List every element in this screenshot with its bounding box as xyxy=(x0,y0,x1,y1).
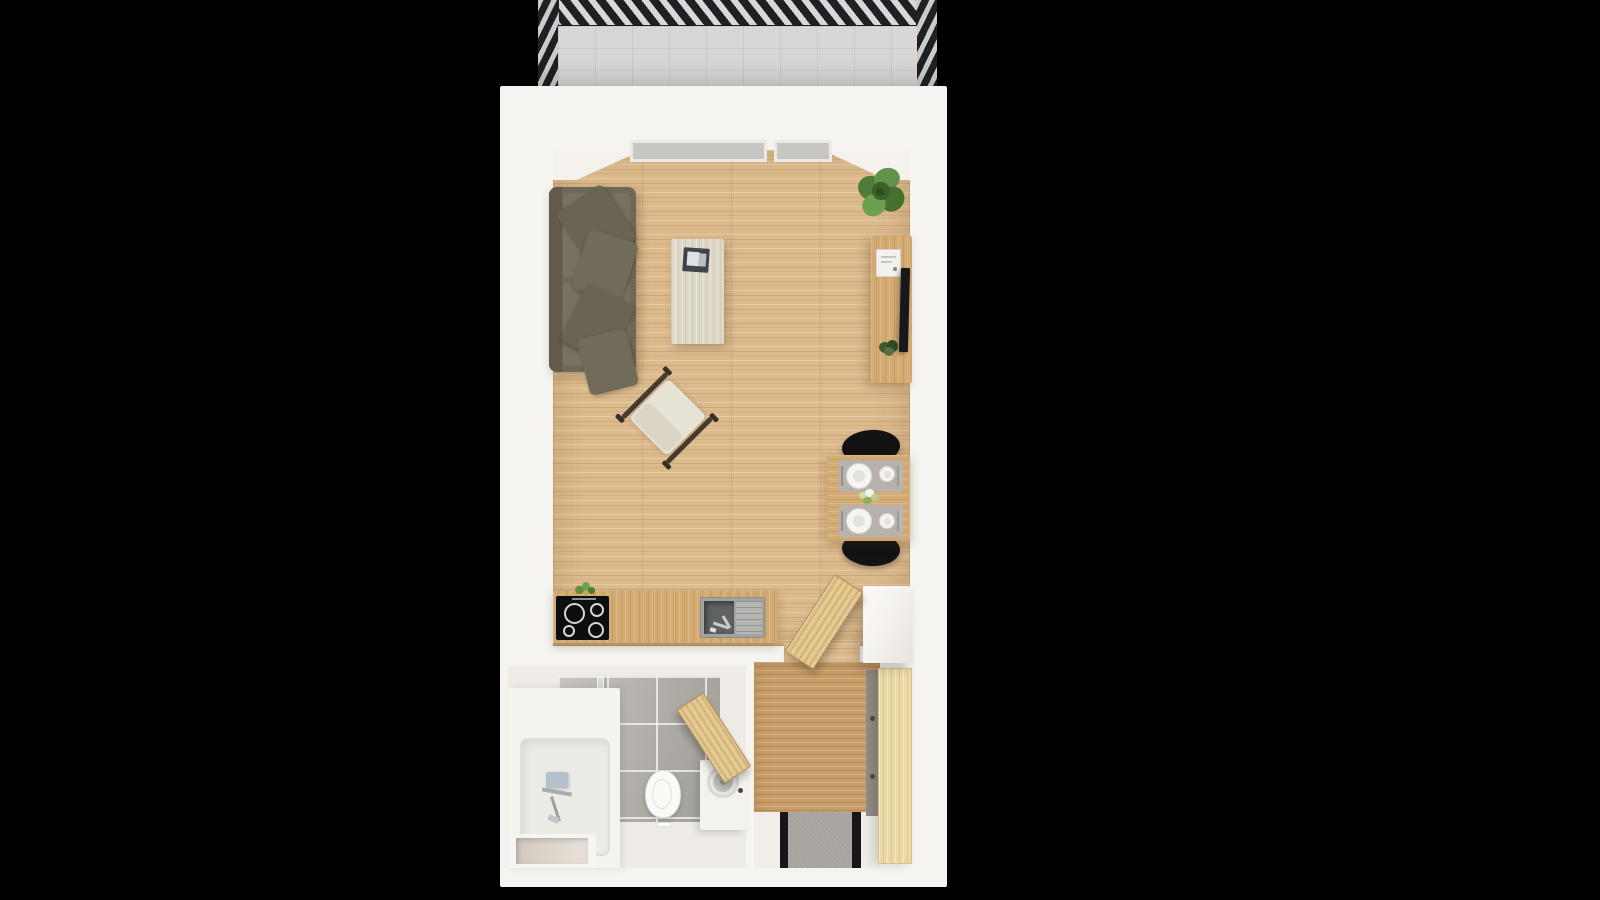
burner xyxy=(564,603,585,624)
hallway-floor xyxy=(754,662,880,812)
media-device-slot xyxy=(881,261,892,263)
burner xyxy=(588,622,604,638)
media-device-dot xyxy=(893,267,897,271)
side-plate xyxy=(879,513,895,529)
dinner-plate xyxy=(846,508,872,534)
bathroom-floor xyxy=(508,666,746,868)
dining-table xyxy=(827,455,910,541)
balcony-railing-left xyxy=(538,0,559,95)
plate-center xyxy=(884,471,891,478)
balcony-railing-top xyxy=(538,0,937,27)
console-plant xyxy=(879,338,899,356)
balcony xyxy=(538,0,937,95)
plant-leaf xyxy=(884,347,894,356)
apartment xyxy=(500,86,947,887)
door-mat-edge xyxy=(780,812,788,868)
toilet-seat-ring xyxy=(652,779,672,809)
cutlery-fork xyxy=(841,466,843,486)
placemat xyxy=(839,505,903,537)
niche-opening xyxy=(516,838,588,864)
magazine xyxy=(682,247,710,273)
kitchen-counter xyxy=(553,591,778,643)
herb-leaf xyxy=(588,587,595,594)
tv-panel xyxy=(899,268,910,352)
door-mat-edge xyxy=(852,812,861,868)
placemat xyxy=(839,460,903,492)
panel-handle xyxy=(870,774,875,779)
cooktop-controls xyxy=(572,598,596,600)
entrance-zone xyxy=(754,812,880,868)
floorplan-render: Photorealistic top-down 3D render of a s… xyxy=(0,0,1600,900)
magazine-page xyxy=(699,253,707,266)
flower xyxy=(863,497,872,504)
balcony-railing-right xyxy=(916,0,937,95)
balcony-floor xyxy=(558,26,917,95)
kitchen-sink xyxy=(700,597,765,638)
cooktop xyxy=(556,596,609,640)
plate-center xyxy=(853,515,865,527)
toilet xyxy=(643,770,683,828)
white-cabinet xyxy=(863,586,913,663)
door-mat xyxy=(788,812,852,868)
toilet-flush-plate xyxy=(657,822,671,827)
plate-center xyxy=(853,470,865,482)
coffee-table xyxy=(671,239,724,344)
media-device xyxy=(876,249,901,277)
sink-basin xyxy=(704,601,734,634)
sink-drainboard xyxy=(736,601,762,634)
burner xyxy=(563,625,575,637)
tub-mixer-box xyxy=(546,772,568,788)
flower xyxy=(871,494,879,501)
cutlery-knife xyxy=(897,466,899,486)
cutlery-spoon xyxy=(900,466,902,486)
floor-plant xyxy=(852,166,904,220)
cutlery-knife xyxy=(897,511,899,531)
cutlery-fork xyxy=(841,511,843,531)
wall-niche xyxy=(508,834,596,868)
side-plate xyxy=(879,466,895,482)
burner xyxy=(590,603,604,617)
washer-knob xyxy=(738,788,743,793)
plate-center xyxy=(884,518,891,525)
media-device-slot xyxy=(881,256,896,258)
dinner-plate xyxy=(846,463,872,489)
cutlery-spoon xyxy=(900,511,902,531)
plant-center xyxy=(876,188,884,196)
sofa xyxy=(549,187,636,372)
wardrobe xyxy=(878,668,912,864)
counter-herb xyxy=(575,582,595,596)
tv-console xyxy=(871,236,912,383)
balcony-window-small xyxy=(774,140,832,162)
balcony-window-large xyxy=(630,140,767,162)
table-flowers xyxy=(857,489,881,506)
panel-handle xyxy=(870,716,875,721)
magazine-page xyxy=(687,251,700,266)
